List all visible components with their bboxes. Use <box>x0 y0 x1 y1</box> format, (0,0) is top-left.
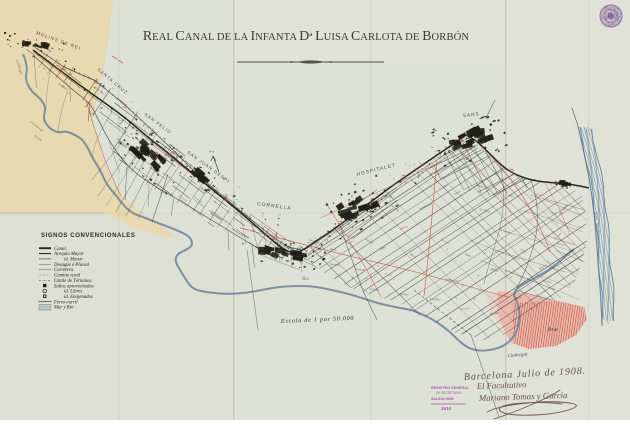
svg-text:SALIDA NÚM.: SALIDA NÚM. <box>431 396 454 401</box>
svg-text:SIGNOS CONVENCIONALES: SIGNOS CONVENCIONALES <box>41 232 136 239</box>
svg-text:Saltos aprovechados: Saltos aprovechados <box>54 284 94 289</box>
svg-text:* *: * * <box>209 150 214 155</box>
svg-text:Río: Río <box>301 277 309 282</box>
svg-text:Camino rural: Camino rural <box>54 274 81 279</box>
svg-text:REGISTRO GENERAL: REGISTRO GENERAL <box>431 386 470 390</box>
svg-text:Prat: Prat <box>547 327 558 333</box>
svg-text:id. Libres: id. Libres <box>64 290 82 295</box>
svg-text:Mar y Río: Mar y Río <box>53 306 74 311</box>
svg-text:Acequia Mayor: Acequia Mayor <box>53 252 84 257</box>
svg-text:1910: 1910 <box>441 406 452 411</box>
svg-text:Desagüe é Pluvial: Desagüe é Pluvial <box>53 263 90 268</box>
svg-text:Límite de Términos: Límite de Términos <box>53 279 91 284</box>
svg-text:id. Menor: id. Menor <box>64 258 83 263</box>
svg-text:Carretera.: Carretera. <box>54 268 74 273</box>
svg-text:Molino: Molino <box>399 292 409 297</box>
svg-text:id. Enajenados: id. Enajenados <box>64 295 93 300</box>
svg-text:Can Rius: Can Rius <box>430 297 442 302</box>
svg-text:Bordeta: Bordeta <box>460 306 470 311</box>
svg-text:Bordeta: Bordeta <box>330 262 340 267</box>
svg-text:S. Juan: S. Juan <box>370 287 379 292</box>
svg-text:Canal.: Canal. <box>54 247 67 252</box>
svg-text:El Facultativo: El Facultativo <box>476 379 527 391</box>
svg-text:Ferro-carril: Ferro-carril <box>53 300 78 305</box>
svg-text:DE SECRETARIA: DE SECRETARIA <box>436 391 462 395</box>
